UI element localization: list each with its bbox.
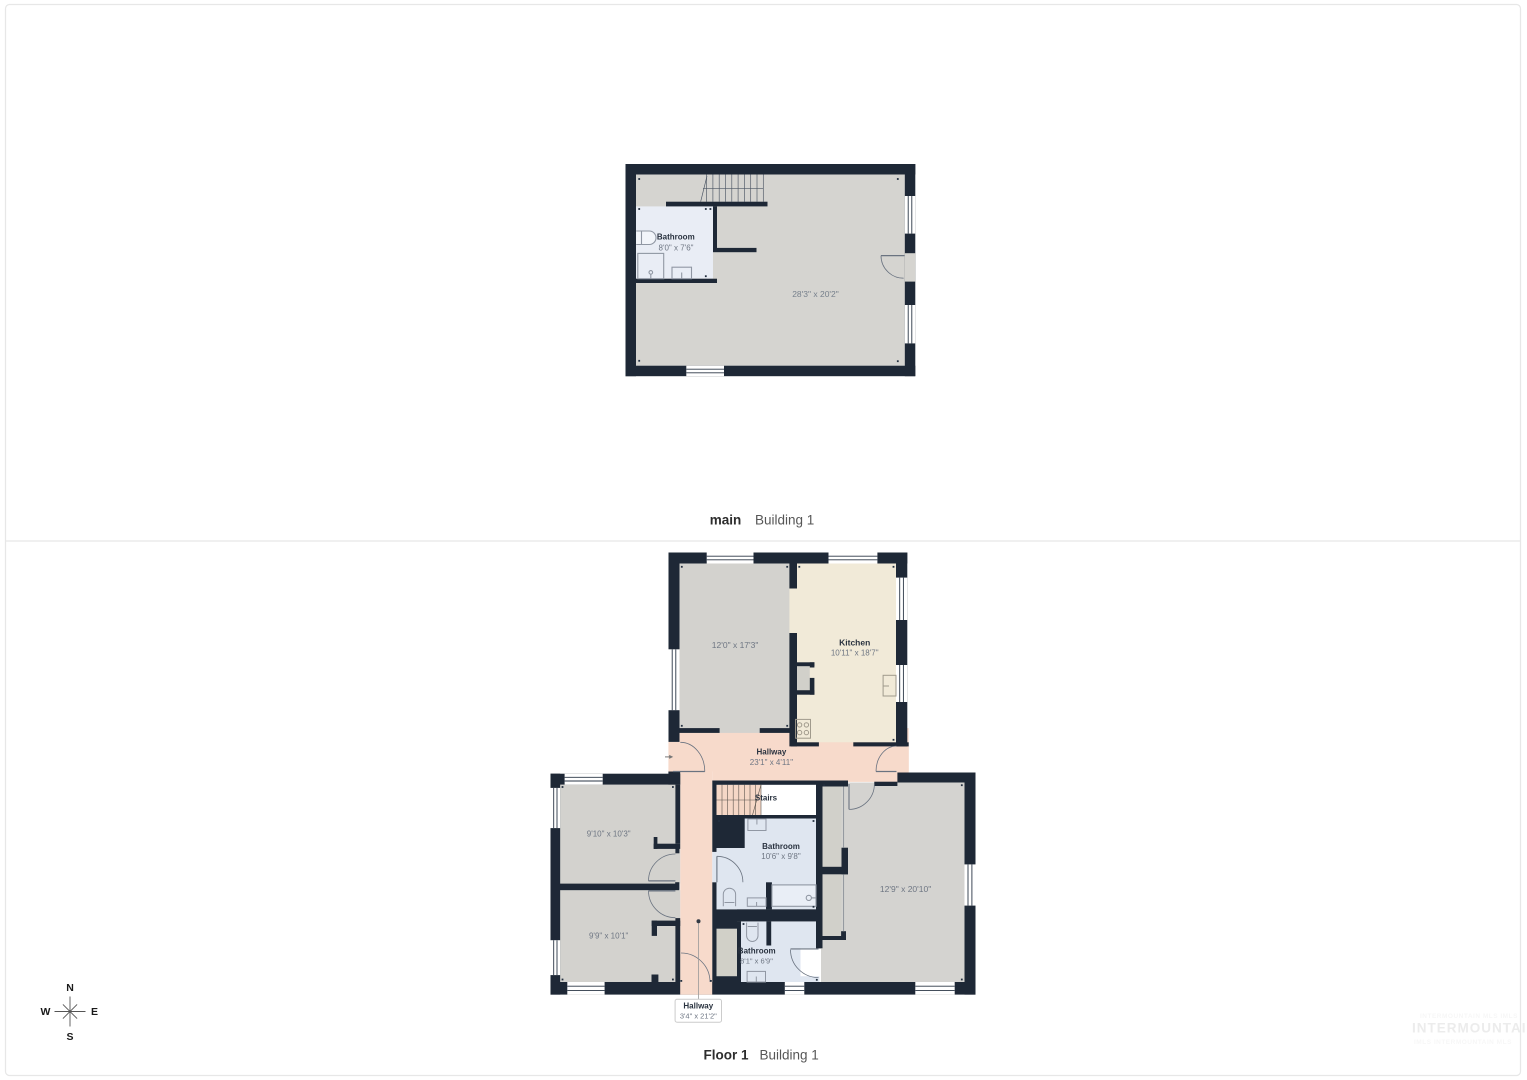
svg-text:Bathroom: Bathroom bbox=[657, 233, 695, 242]
svg-text:W: W bbox=[41, 1006, 51, 1018]
svg-text:23'1" x 4'11": 23'1" x 4'11" bbox=[750, 758, 793, 767]
svg-text:10'11" x 18'7": 10'11" x 18'7" bbox=[831, 649, 879, 658]
svg-text:Hallway: Hallway bbox=[683, 1002, 713, 1011]
svg-text:8'1" x 6'9": 8'1" x 6'9" bbox=[740, 956, 773, 965]
svg-text:INTERMOUNTAIN MLS IMLS: INTERMOUNTAIN MLS IMLS bbox=[1420, 1013, 1518, 1020]
svg-text:9'10" x 10'3": 9'10" x 10'3" bbox=[587, 829, 631, 838]
svg-text:9'9" x 10'1": 9'9" x 10'1" bbox=[589, 932, 629, 941]
svg-text:12'9" x 20'10": 12'9" x 20'10" bbox=[880, 884, 931, 894]
svg-text:Floor 1: Floor 1 bbox=[703, 1048, 748, 1063]
svg-text:8'0" x 7'6": 8'0" x 7'6" bbox=[659, 243, 694, 252]
svg-text:S: S bbox=[66, 1031, 73, 1043]
svg-text:Kitchen: Kitchen bbox=[839, 637, 870, 647]
svg-text:28'3" x 20'2": 28'3" x 20'2" bbox=[792, 289, 839, 299]
svg-text:10'6" x 9'8": 10'6" x 9'8" bbox=[761, 852, 801, 861]
svg-text:Stairs: Stairs bbox=[755, 794, 778, 803]
svg-text:INTERMOUNTAIN: INTERMOUNTAIN bbox=[1412, 1021, 1527, 1036]
svg-text:12'0" x 17'3": 12'0" x 17'3" bbox=[712, 640, 759, 650]
svg-text:Bathroom: Bathroom bbox=[762, 842, 800, 851]
svg-text:Hallway: Hallway bbox=[757, 748, 787, 757]
svg-text:main: main bbox=[710, 513, 742, 528]
svg-text:3'4" x 21'2": 3'4" x 21'2" bbox=[680, 1011, 717, 1020]
svg-text:IMLS INTERMOUNTAIN MLS: IMLS INTERMOUNTAIN MLS bbox=[1414, 1039, 1512, 1046]
svg-text:Bathroom: Bathroom bbox=[738, 947, 776, 956]
svg-text:N: N bbox=[66, 982, 74, 994]
svg-text:E: E bbox=[91, 1006, 98, 1018]
svg-text:Building 1: Building 1 bbox=[760, 1048, 819, 1063]
svg-text:Building 1: Building 1 bbox=[755, 513, 814, 528]
